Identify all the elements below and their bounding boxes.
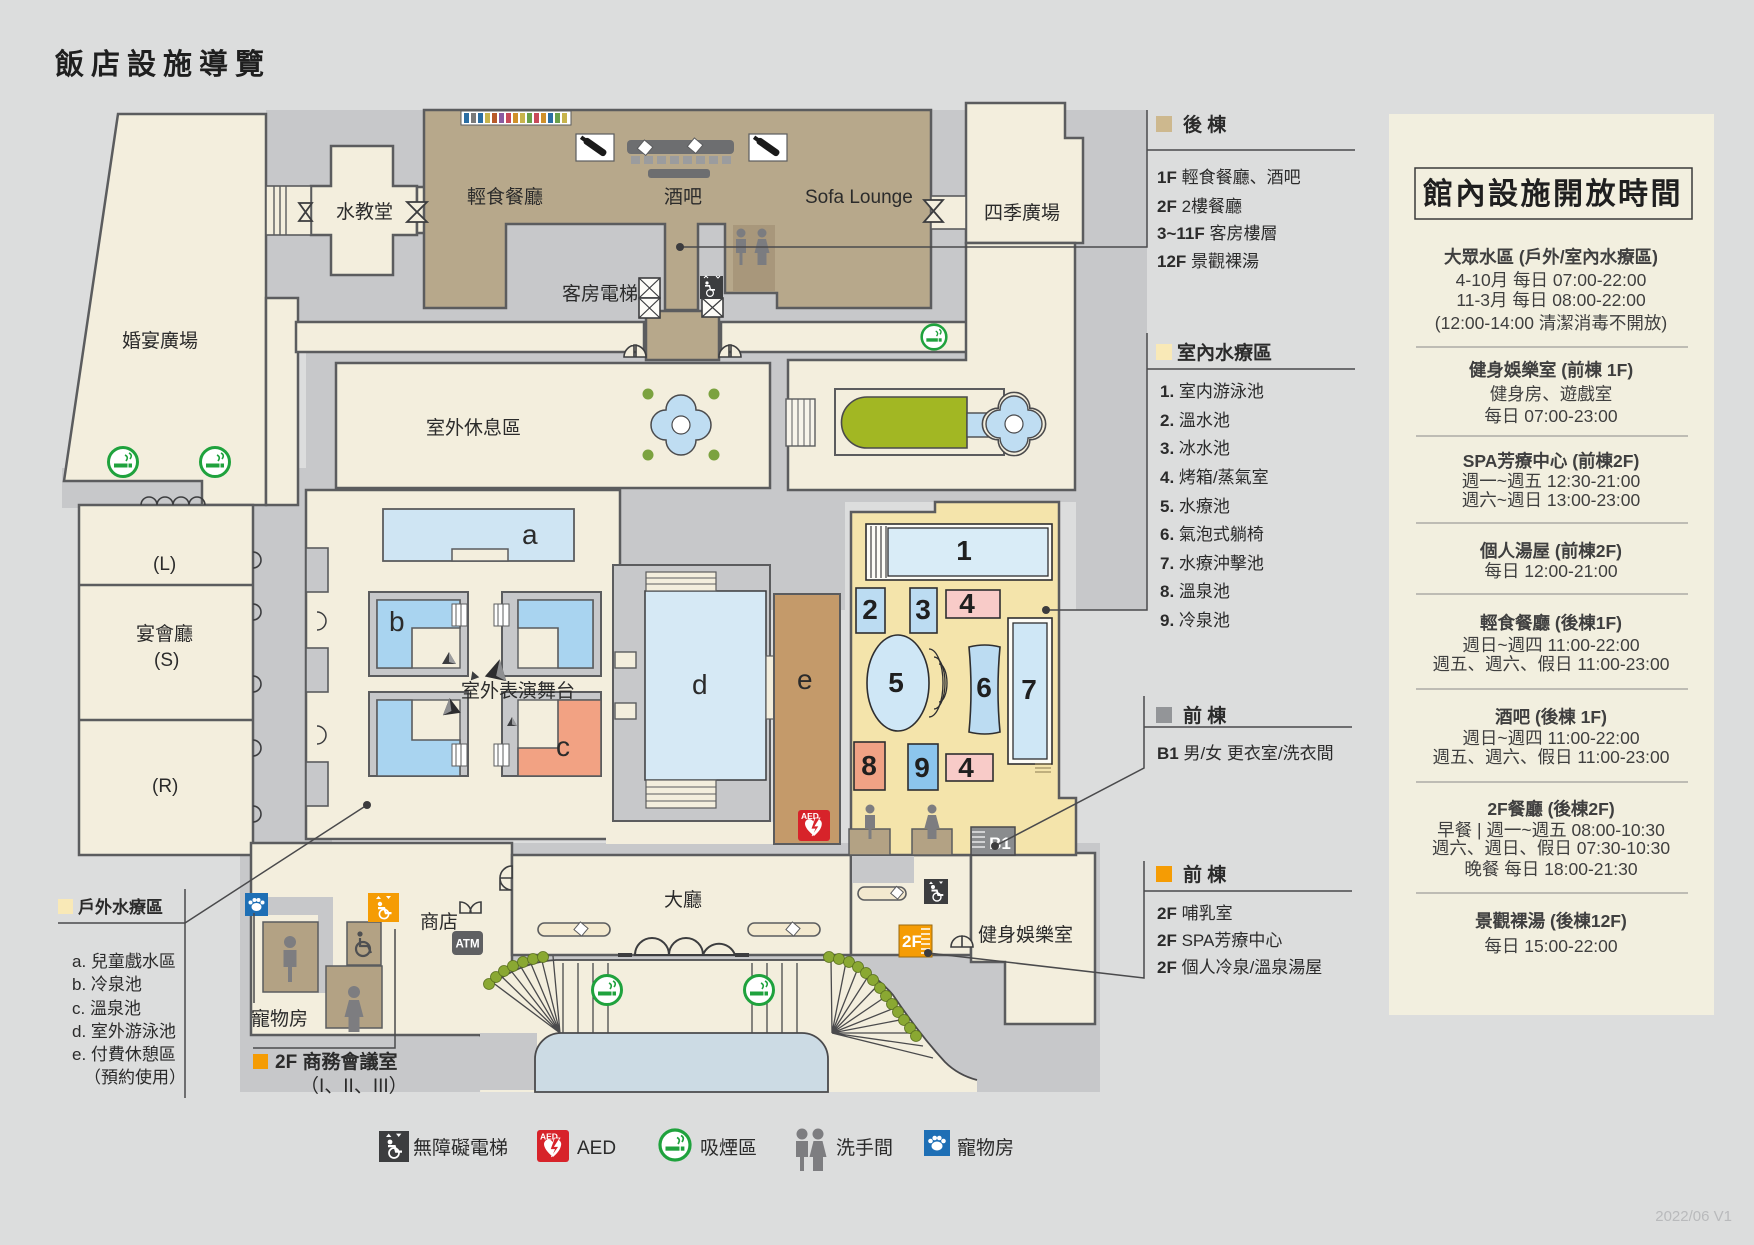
svg-text:8. 溫泉池: 8. 溫泉池: [1160, 582, 1230, 601]
svg-text:飯店設施導覽: 飯店設施導覽: [55, 47, 271, 81]
svg-text:戶外水療區: 戶外水療區: [78, 897, 163, 917]
svg-text:(L): (L): [153, 554, 176, 575]
svg-text:Sofa Lounge: Sofa Lounge: [805, 187, 913, 208]
svg-text:d: d: [692, 669, 708, 700]
svg-text:SPA芳療中心 (前棟2F): SPA芳療中心 (前棟2F): [1463, 451, 1640, 471]
svg-text:健身房、遊戲室: 健身房、遊戲室: [1490, 384, 1613, 404]
svg-text:2F 個人冷泉/溫泉湯屋: 2F 個人冷泉/溫泉湯屋: [1157, 958, 1322, 977]
svg-text:b: b: [389, 606, 405, 637]
svg-text:宴會廳: 宴會廳: [136, 622, 193, 645]
svg-text:前 棟: 前 棟: [1183, 704, 1227, 727]
svg-text:b. 冷泉池: b. 冷泉池: [72, 975, 142, 994]
svg-text:室外表演舞台: 室外表演舞台: [461, 680, 575, 702]
svg-text:（預約使用）: （預約使用）: [84, 1067, 186, 1087]
svg-text:AED: AED: [577, 1138, 616, 1159]
svg-text:無障礙電梯: 無障礙電梯: [413, 1137, 508, 1159]
svg-text:（I、II、III）: （I、II、III）: [300, 1075, 408, 1097]
svg-text:2F SPA芳療中心: 2F SPA芳療中心: [1157, 931, 1282, 950]
svg-text:d. 室外游泳池: d. 室外游泳池: [72, 1022, 176, 1041]
svg-text:洗手間: 洗手間: [836, 1137, 893, 1159]
svg-text:8: 8: [861, 750, 877, 781]
svg-text:晚餐 每日 18:00-21:30: 晚餐 每日 18:00-21:30: [1464, 859, 1637, 879]
svg-text:大眾水區 (戶外/室內水療區): 大眾水區 (戶外/室內水療區): [1444, 247, 1658, 267]
svg-text:9. 冷泉池: 9. 冷泉池: [1160, 611, 1230, 630]
svg-text:週六、週日、假日 07:30-10:30: 週六、週日、假日 07:30-10:30: [1432, 838, 1671, 858]
svg-text:週六~週日 13:00-23:00: 週六~週日 13:00-23:00: [1462, 490, 1641, 510]
svg-text:2F 商務會議室: 2F 商務會議室: [275, 1050, 397, 1073]
svg-text:12F 景觀裸湯: 12F 景觀裸湯: [1157, 252, 1259, 271]
svg-text:B1 男/女 更衣室/洗衣間: B1 男/女 更衣室/洗衣間: [1157, 744, 1334, 763]
svg-text:c: c: [556, 731, 570, 762]
svg-text:每日 12:00-21:00: 每日 12:00-21:00: [1484, 561, 1618, 581]
svg-text:週一~週五 12:30-21:00: 週一~週五 12:30-21:00: [1462, 471, 1641, 491]
svg-text:4: 4: [958, 752, 974, 783]
svg-text:後 棟: 後 棟: [1183, 113, 1227, 136]
svg-text:室外休息區: 室外休息區: [426, 417, 521, 439]
svg-text:7: 7: [1021, 674, 1037, 705]
svg-text:健身娛樂室: 健身娛樂室: [978, 924, 1073, 946]
svg-text:1. 室内游泳池: 1. 室内游泳池: [1160, 382, 1264, 401]
svg-text:四季廣場: 四季廣場: [984, 202, 1060, 224]
svg-text:a: a: [522, 519, 538, 550]
svg-text:6: 6: [976, 672, 992, 703]
svg-text:週五、週六、假日 11:00-23:00: 週五、週六、假日 11:00-23:00: [1433, 747, 1670, 767]
svg-text:每日 07:00-23:00: 每日 07:00-23:00: [1484, 406, 1618, 426]
svg-text:2F餐廳 (後棟2F): 2F餐廳 (後棟2F): [1487, 799, 1614, 819]
svg-text:輕食餐廳 (後棟1F): 輕食餐廳 (後棟1F): [1480, 613, 1622, 633]
svg-text:e: e: [797, 664, 813, 695]
svg-text:室內水療區: 室內水療區: [1177, 341, 1272, 364]
svg-text:4. 烤箱/蒸氣室: 4. 烤箱/蒸氣室: [1160, 468, 1269, 487]
svg-text:2F: 2F: [902, 932, 922, 951]
svg-text:2F 2樓餐廳: 2F 2樓餐廳: [1157, 197, 1242, 216]
svg-text:6. 氣泡式躺椅: 6. 氣泡式躺椅: [1160, 525, 1264, 544]
svg-text:3~11F 客房樓層: 3~11F 客房樓層: [1157, 224, 1277, 243]
svg-text:酒吧: 酒吧: [664, 186, 702, 208]
svg-text:前 棟: 前 棟: [1183, 863, 1227, 886]
svg-text:(R): (R): [152, 776, 178, 797]
svg-text:2F 哺乳室: 2F 哺乳室: [1157, 904, 1233, 923]
svg-text:3. 冰水池: 3. 冰水池: [1160, 439, 1230, 458]
svg-text:c. 溫泉池: c. 溫泉池: [72, 999, 141, 1018]
svg-text:2. 溫水池: 2. 溫水池: [1160, 411, 1230, 430]
svg-text:婚宴廣場: 婚宴廣場: [122, 329, 198, 352]
svg-text:11-3月 每日 08:00-22:00: 11-3月 每日 08:00-22:00: [1456, 290, 1646, 310]
svg-text:個人湯屋 (前棟2F): 個人湯屋 (前棟2F): [1479, 541, 1622, 561]
svg-text:e. 付費休憩區: e. 付費休憩區: [72, 1045, 176, 1064]
svg-text:5: 5: [888, 667, 904, 698]
svg-text:週日~週四 11:00-22:00: 週日~週四 11:00-22:00: [1462, 728, 1639, 748]
svg-text:a. 兒童戲水區: a. 兒童戲水區: [72, 952, 176, 971]
svg-text:寵物房: 寵物房: [251, 1008, 308, 1030]
svg-text:館內設施開放時間: 館內設施開放時間: [1423, 177, 1683, 211]
svg-text:5. 水療池: 5. 水療池: [1160, 497, 1230, 516]
svg-text:商店: 商店: [420, 911, 458, 933]
svg-text:吸煙區: 吸煙區: [700, 1137, 757, 1159]
svg-text:酒吧 (後棟 1F): 酒吧 (後棟 1F): [1495, 707, 1607, 727]
svg-text:大廳: 大廳: [664, 889, 702, 911]
svg-text:週日~週四 11:00-22:00: 週日~週四 11:00-22:00: [1462, 635, 1639, 655]
svg-text:客房電梯: 客房電梯: [562, 283, 638, 305]
svg-text:2: 2: [862, 594, 878, 625]
svg-text:水教堂: 水教堂: [336, 201, 393, 223]
svg-text:4-10月 每日 07:00-22:00: 4-10月 每日 07:00-22:00: [1456, 270, 1647, 290]
svg-text:(12:00-14:00 清潔消毒不開放): (12:00-14:00 清潔消毒不開放): [1435, 313, 1667, 333]
svg-text:健身娛樂室 (前棟 1F): 健身娛樂室 (前棟 1F): [1469, 360, 1633, 380]
svg-text:ATM: ATM: [455, 939, 479, 951]
svg-text:景觀裸湯 (後棟12F): 景觀裸湯 (後棟12F): [1475, 911, 1627, 931]
svg-text:(S): (S): [154, 650, 179, 671]
svg-text:寵物房: 寵物房: [957, 1137, 1014, 1159]
svg-text:3: 3: [915, 594, 931, 625]
svg-text:早餐 | 週一~週五 08:00-10:30: 早餐 | 週一~週五 08:00-10:30: [1437, 820, 1665, 840]
svg-text:9: 9: [914, 752, 930, 783]
svg-text:2022/06 V1: 2022/06 V1: [1655, 1208, 1732, 1225]
svg-text:1F 輕食餐廳、酒吧: 1F 輕食餐廳、酒吧: [1157, 168, 1301, 187]
svg-text:輕食餐廳: 輕食餐廳: [467, 186, 543, 208]
svg-text:4: 4: [959, 588, 975, 619]
svg-text:1: 1: [956, 535, 972, 566]
svg-text:7. 水療沖擊池: 7. 水療沖擊池: [1160, 554, 1264, 573]
svg-text:每日 15:00-22:00: 每日 15:00-22:00: [1484, 936, 1618, 956]
svg-text:週五、週六、假日 11:00-23:00: 週五、週六、假日 11:00-23:00: [1433, 654, 1670, 674]
